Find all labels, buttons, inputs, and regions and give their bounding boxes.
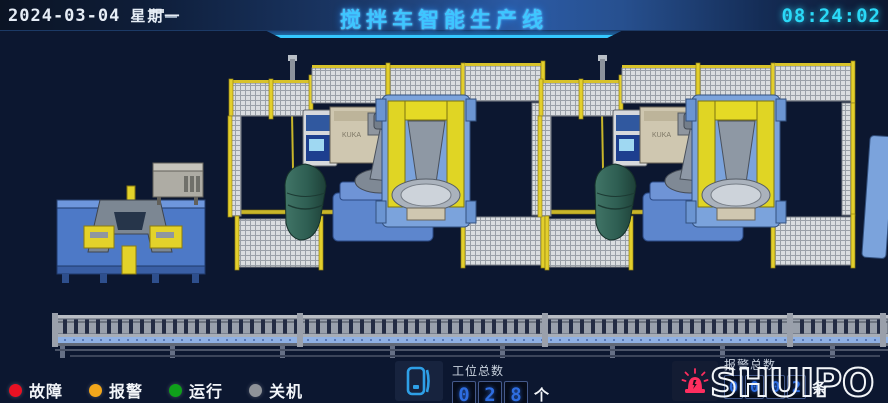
station-digit: 8: [504, 381, 528, 403]
alarm-button[interactable]: [672, 361, 718, 401]
stations-counter-unit: 个: [534, 384, 549, 403]
partial-station-base: [862, 135, 888, 258]
clock-display: 08:24:02: [781, 5, 881, 27]
fault-status-dot: [9, 384, 22, 397]
page-title: 搅拌车智能生产线: [0, 4, 888, 34]
device-button[interactable]: [395, 361, 443, 401]
legend-label: 运行: [189, 378, 223, 402]
welding-cell-1: [228, 55, 545, 270]
alarm-digit: 2: [787, 375, 806, 399]
scada-dashboard: KUKA: [0, 0, 888, 403]
production-line-3d-view: KUKA: [0, 0, 888, 403]
legend-label: 故障: [29, 378, 63, 402]
legend-item-fault: 故障: [9, 378, 63, 402]
fixture-station: [57, 186, 205, 283]
welding-cell-2: [538, 55, 855, 270]
legend-label: 关机: [269, 378, 303, 402]
alarm-beacon-icon: [680, 365, 710, 397]
alarm-digit: 0: [724, 375, 743, 399]
alarm-digit: 0: [745, 375, 764, 399]
phone-icon: [404, 365, 434, 397]
alarms-counter-unit: 条: [812, 377, 827, 398]
control-cabinet: [153, 163, 203, 205]
legend-item-shutdown: 关机: [249, 378, 303, 402]
conveyor-line: [52, 313, 888, 358]
stations-counter-label: 工位总数: [452, 362, 549, 379]
alarms-counter-label: 报警总数: [724, 356, 827, 373]
alarms-counter: 报警总数 0 0 0 2 条: [724, 356, 827, 399]
legend-item-running: 运行: [169, 378, 223, 402]
station-digit: 0: [452, 381, 476, 403]
legend-item-alarm: 报警: [89, 378, 143, 402]
stations-counter: 工位总数 0 2 8 个: [452, 362, 549, 403]
status-legend: 故障 报警 运行 关机: [9, 378, 303, 402]
station-digit: 2: [478, 381, 502, 403]
alarm-digit: 0: [766, 375, 785, 399]
legend-label: 报警: [109, 378, 143, 402]
alarm-status-dot: [89, 384, 102, 397]
shutdown-status-dot: [249, 384, 262, 397]
running-status-dot: [169, 384, 182, 397]
